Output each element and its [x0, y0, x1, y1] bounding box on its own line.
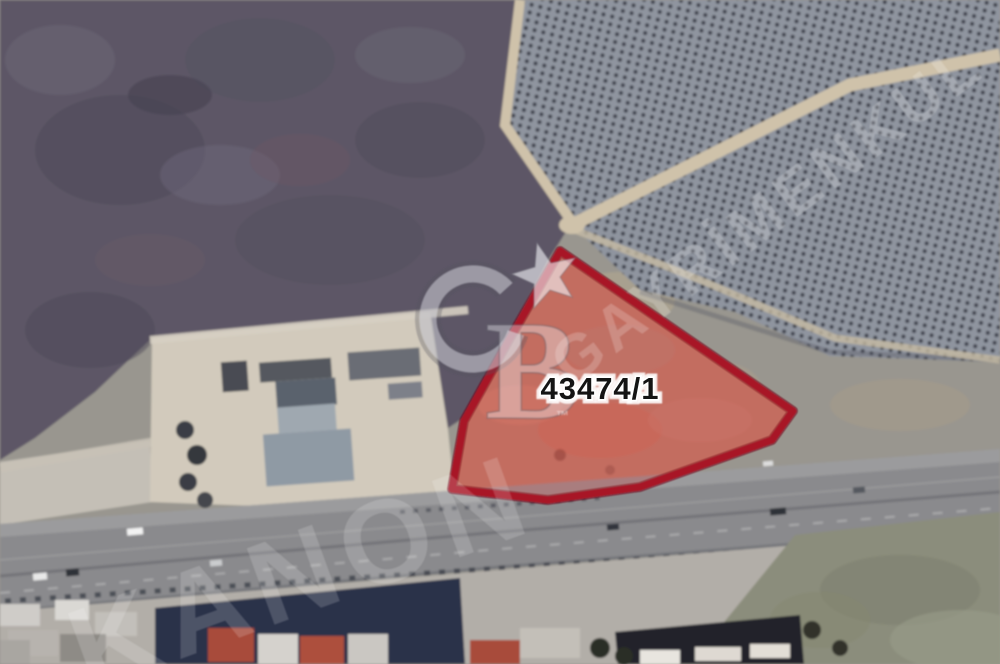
- vehicle: [763, 461, 773, 467]
- vehicle: [66, 568, 80, 576]
- house-wall: [695, 647, 741, 661]
- facility-tree: [179, 473, 197, 491]
- scrub-texture: [25, 292, 155, 368]
- tree: [832, 640, 848, 656]
- vehicle: [853, 486, 865, 493]
- scrub-texture: [355, 27, 465, 83]
- facility-tree: [176, 421, 194, 439]
- scrub-texture: [250, 134, 350, 186]
- ground-patch: [830, 379, 970, 431]
- house-roof: [0, 640, 30, 664]
- logo-trademark: ™: [556, 408, 569, 423]
- scrub-texture: [95, 234, 205, 286]
- house-roof: [0, 604, 40, 626]
- tree: [803, 621, 821, 639]
- path-junction: [559, 216, 585, 234]
- parcel-label-group: 43474/1 43474/1: [540, 371, 659, 406]
- scrub-texture: [235, 195, 425, 285]
- house-roof: [348, 634, 388, 664]
- house-roof: [520, 628, 580, 658]
- facility-forecourt: [263, 428, 354, 486]
- satellite-scene: B ™ KANON GAYRİMENKUL 43474/1 43474/1: [0, 0, 1000, 664]
- scrub-texture: [5, 25, 115, 95]
- facility-tree: [187, 445, 207, 465]
- house-wall: [750, 644, 790, 658]
- facility-building: [277, 404, 337, 434]
- facility-building: [221, 361, 249, 393]
- facility-building: [275, 377, 337, 408]
- red-roof: [470, 640, 520, 664]
- facility-tree: [197, 492, 213, 508]
- parcel-label: 43474/1: [540, 371, 659, 406]
- satellite-image: B ™ KANON GAYRİMENKUL 43474/1 43474/1: [0, 0, 1000, 664]
- vehicle: [33, 572, 48, 580]
- house-wall: [640, 650, 680, 664]
- scrub-texture: [355, 102, 485, 178]
- tree: [590, 638, 610, 658]
- facility-building: [347, 348, 421, 381]
- vehicle: [770, 507, 787, 515]
- facility-building: [388, 381, 423, 399]
- scrub-texture: [128, 75, 212, 115]
- vehicle: [607, 523, 619, 530]
- vehicle: [127, 527, 144, 535]
